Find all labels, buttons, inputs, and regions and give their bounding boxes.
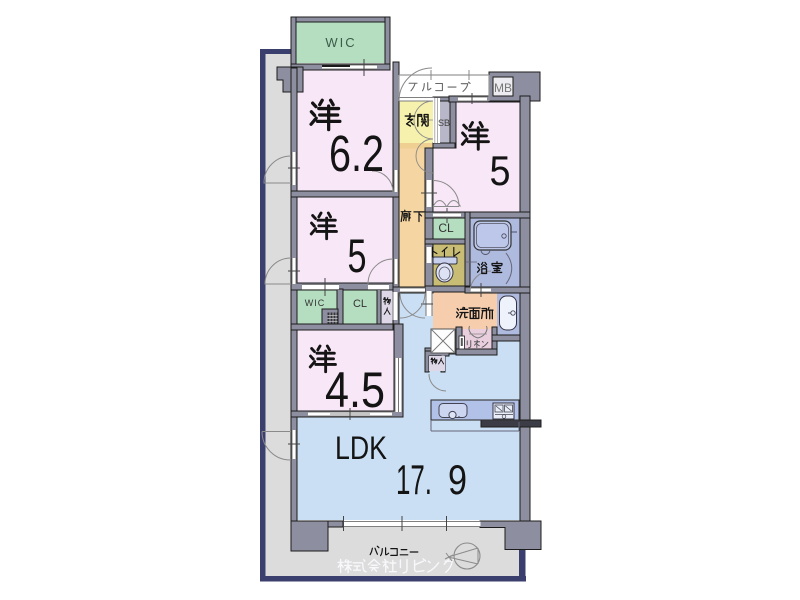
- svg-text:WIC: WIC: [305, 298, 326, 308]
- svg-text:WIC: WIC: [325, 35, 356, 50]
- svg-text:17.: 17.: [396, 456, 432, 503]
- svg-text:SB: SB: [438, 118, 450, 128]
- svg-text:CL: CL: [438, 221, 454, 235]
- svg-text:CL: CL: [353, 298, 367, 310]
- svg-text:4.5: 4.5: [325, 362, 385, 418]
- svg-text:6.2: 6.2: [329, 125, 384, 182]
- svg-text:LDK: LDK: [335, 430, 387, 466]
- svg-text:5: 5: [348, 229, 367, 282]
- svg-text:MB: MB: [494, 81, 512, 95]
- svg-text:9: 9: [448, 456, 467, 503]
- svg-text:5: 5: [490, 147, 511, 194]
